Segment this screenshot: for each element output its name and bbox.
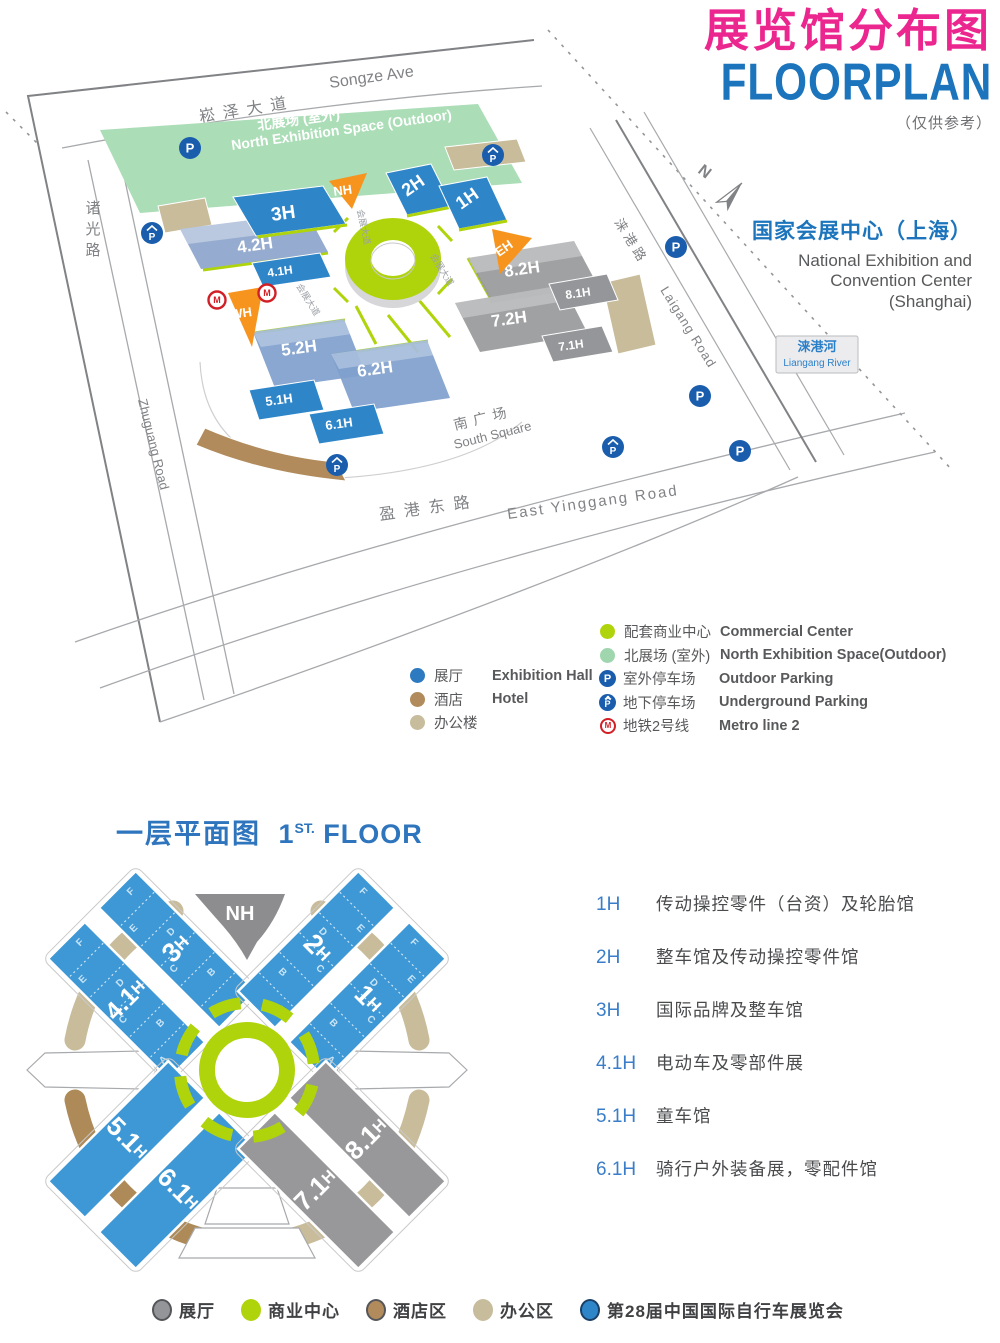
legend-item-commercial-center: 配套商业中心 Commercial Center (600, 620, 946, 644)
compass-n-label: N (695, 162, 715, 183)
outdoor-parking-legend-icon: P (599, 670, 616, 687)
legend-item-exhibition-hall: 展厅 Exhibition Hall (410, 664, 593, 688)
south-pavilion-2 (179, 1228, 315, 1258)
svg-text:P: P (696, 389, 705, 404)
hall-list-row: 3H国际品牌及整车馆 (596, 1000, 996, 1022)
legend-item-metro: M 地铁2号线 Metro line 2 (600, 714, 946, 738)
hall-list-row: 5.1H童车馆 (596, 1106, 996, 1128)
metro-icon: M (209, 292, 226, 309)
hall-list-row: 2H整车馆及传动操控零件馆 (596, 947, 996, 969)
zhuguang-label-en: Zhuguang Road (135, 397, 172, 491)
bicycle-fair-dot-icon (580, 1299, 600, 1321)
floor1-heading-en: 1ST. FLOOR (279, 819, 423, 849)
svg-text:M: M (213, 295, 221, 305)
songze-label-en: Songze Ave (328, 63, 415, 92)
svg-text:P: P (334, 464, 341, 475)
svg-text:P: P (186, 141, 195, 156)
svg-text:NH: NH (226, 903, 255, 925)
svg-text:P: P (490, 154, 497, 165)
hotel-dot-icon (410, 692, 425, 707)
svg-text:WH: WH (229, 304, 253, 322)
river-label-box: 涞港河 Liangang River (776, 336, 858, 373)
yinggang-label-zh: 盈港东路 (378, 492, 480, 524)
river-label-zh: 涞港河 (797, 339, 836, 354)
parking-icon: P (179, 137, 201, 159)
expo-ave-label-2: 会展大道 (294, 281, 322, 317)
compass: N (695, 162, 748, 211)
svg-text:3H: 3H (270, 202, 297, 226)
parking-icon: P (665, 236, 687, 258)
svg-text:P: P (672, 240, 681, 255)
legend-item-north-space: 北展场 (室外) North Exhibition Space(Outdoor) (600, 644, 946, 668)
office-dot-icon (410, 715, 425, 730)
floor1-plan: NH A B C D E F A B C D E F 3H 4.1H (25, 858, 475, 1278)
svg-text:P: P (149, 232, 156, 243)
parking-icon: P (689, 385, 711, 407)
svg-text:M: M (263, 288, 271, 298)
floor1-legend: 展厅 商业中心 酒店区 办公区 第28届中国国际自行车展览会 (152, 1297, 870, 1322)
west-wing (27, 1051, 157, 1089)
hall-list-row: 6.1H骑行户外装备展，零配件馆 (596, 1159, 996, 1181)
hall-list: 1H传动操控零件（台资）及轮胎馆 2H整车馆及传动操控零件馆 3H国际品牌及整车… (596, 894, 996, 1212)
floor-legend-hotel: 酒店区 (366, 1297, 447, 1322)
underground-parking-legend-icon: P (599, 694, 616, 711)
svg-text:P: P (610, 446, 617, 457)
floor1-heading-zh: 一层平面图 (116, 819, 261, 849)
north-space-dot-icon (600, 648, 615, 663)
site-legend-right: 配套商业中心 Commercial Center 北展场 (室外) North … (600, 620, 946, 738)
exhibition-dot-icon (152, 1299, 172, 1321)
exhibition-hall-dot-icon (410, 668, 425, 683)
underground-parking-icon: P (482, 144, 504, 166)
svg-text:P: P (736, 444, 745, 459)
underground-parking-icon: P (326, 454, 348, 476)
hall-list-row: 4.1H电动车及零部件展 (596, 1053, 996, 1075)
river-label-en: Liangang River (783, 358, 851, 369)
underground-parking-icon: P (602, 436, 624, 458)
commercial-center-dot-icon (600, 624, 615, 639)
east-wing (337, 1051, 467, 1089)
floor-legend-commercial: 商业中心 (241, 1297, 340, 1322)
legend-item-outdoor-parking: P 室外停车场 Outdoor Parking (600, 667, 946, 691)
floor1-central-ring (167, 990, 328, 1151)
site-legend-left: 展厅 Exhibition Hall 酒店 Hotel 办公楼 (410, 664, 593, 735)
office-zone-dot-icon (473, 1299, 493, 1321)
parking-icon: P (729, 440, 751, 462)
floor1-heading: 一层平面图 1ST. FLOOR (116, 812, 423, 851)
legend-item-underground-parking: P 地下停车场 Underground Parking (600, 691, 946, 715)
floor-legend-office: 办公区 (473, 1297, 554, 1322)
compass-needle-icon (717, 178, 748, 211)
central-ring (345, 218, 441, 308)
zhuguang-label-zh: 诸光路 (84, 200, 101, 263)
legend-item-hotel: 酒店 Hotel (410, 688, 593, 712)
commercial-dot-icon (241, 1299, 261, 1321)
underground-parking-icon: P (141, 222, 163, 244)
metro-icon: M (259, 285, 276, 302)
hotel-zone-dot-icon (366, 1299, 386, 1321)
floor-legend-exhibition: 展厅 (152, 1297, 215, 1322)
floor-legend-expo: 第28届中国国际自行车展览会 (580, 1297, 844, 1322)
hall-list-row: 1H传动操控零件（台资）及轮胎馆 (596, 894, 996, 916)
svg-text:NH: NH (332, 182, 353, 199)
metro-legend-icon: M (600, 718, 616, 734)
legend-item-office: 办公楼 (410, 711, 593, 735)
